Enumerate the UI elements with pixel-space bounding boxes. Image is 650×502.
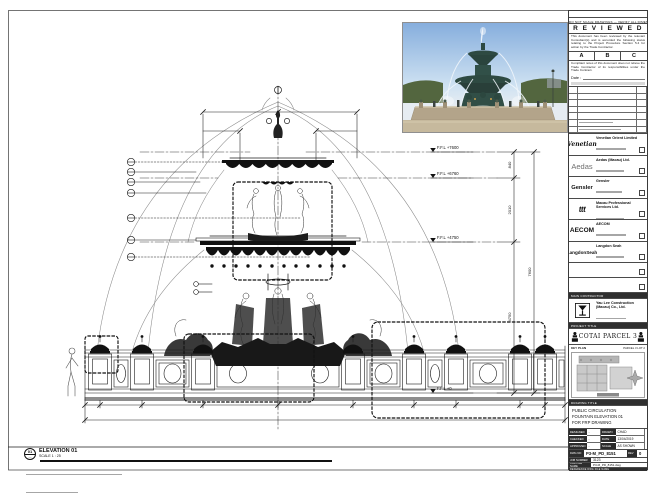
date-value: 13/04/2019 bbox=[616, 436, 645, 443]
cad-file-label: CAD FILE NAME bbox=[569, 463, 591, 467]
gensler-logo: Gensler bbox=[571, 185, 593, 191]
dotted-callout-boxes bbox=[85, 182, 545, 418]
consultant-org: Gensler bbox=[596, 179, 645, 183]
dwg-no-row: DWG NO P3-M_PD_8151 REV 0 bbox=[569, 450, 647, 458]
reviewed-title: R E V I E W E D bbox=[569, 24, 647, 34]
drawing-title-text: PUBLIC CIRCULATION FOUNTAIN ELEVATION 01… bbox=[569, 406, 647, 429]
drawing-title-line: FOR FRP DRAWING bbox=[572, 420, 644, 426]
consultant-row-langdonseah: LangdonSeah Langdon Seah bbox=[569, 242, 647, 263]
status-checkbox bbox=[639, 269, 645, 275]
detail-number: 01 bbox=[25, 449, 35, 455]
dwg-no-label: DWG NO bbox=[569, 450, 584, 457]
ornament-icon bbox=[571, 331, 579, 343]
level-label: F.F.L +6760 bbox=[437, 171, 459, 176]
status-checkbox bbox=[639, 284, 645, 290]
footer-filepath-smudge bbox=[26, 466, 122, 502]
rev-label: REV bbox=[627, 450, 637, 457]
status-checkbox bbox=[639, 254, 645, 260]
yaulee-logo bbox=[575, 303, 590, 318]
designed-value: - bbox=[587, 429, 601, 436]
job-number-value: 3123 bbox=[591, 458, 647, 462]
revision-table: ▲ ▲ bbox=[569, 87, 647, 134]
revision-row bbox=[569, 120, 647, 127]
revision-row bbox=[569, 87, 647, 94]
dim-label: 2010 bbox=[507, 205, 512, 215]
venetian-logo: Venetian bbox=[569, 141, 597, 148]
dim-label: 7600 bbox=[527, 267, 532, 277]
consultant-org: AECOM bbox=[596, 222, 645, 226]
dim-label: 840 bbox=[507, 161, 512, 168]
signature-strip bbox=[571, 82, 645, 86]
scale-value: AS SHOWN bbox=[616, 443, 645, 450]
level-label: F.F.L +7600 bbox=[437, 145, 459, 150]
detail-sheet: — bbox=[25, 455, 35, 459]
level-lines bbox=[140, 152, 497, 242]
revision-row bbox=[569, 100, 647, 107]
revision-row bbox=[569, 113, 647, 120]
elevation-title-label: 01 — ELEVATION 01 SCALE 1 : 25 bbox=[24, 448, 77, 460]
reviewed-paragraph-1: This document has been reviewed by the r… bbox=[569, 34, 647, 51]
reference-photo-image bbox=[402, 22, 568, 133]
status-abc-row: A B C bbox=[569, 51, 647, 61]
drawn-label: DRAWN bbox=[601, 429, 616, 436]
status-checkbox bbox=[639, 211, 645, 217]
date-label: Date : bbox=[571, 76, 581, 80]
level-label: F.F.L +4750 bbox=[437, 235, 459, 240]
status-c: C bbox=[621, 52, 647, 60]
key-plan-sublabel: PARCEL 3 LOT 2 bbox=[623, 346, 645, 350]
consultant-row-mps: ttt Macau Professional Services Ltd. bbox=[569, 199, 647, 220]
reference-photo bbox=[400, 20, 568, 133]
checked-label: CHECKED bbox=[569, 436, 587, 443]
level-markers: F.F.L +7600 F.F.L +6760 F.F.L +4750 F.F.… bbox=[430, 145, 473, 393]
elevation-scale: SCALE 1 : 25 bbox=[39, 454, 77, 458]
elevation-title-rule bbox=[40, 460, 332, 462]
mps-logo: ttt bbox=[579, 205, 586, 214]
date-field-label: DATE bbox=[601, 436, 616, 443]
reviewed-stamp: R E V I E W E D This document has been r… bbox=[569, 24, 647, 87]
empty-consultant-box bbox=[569, 278, 647, 293]
status-b: B bbox=[595, 52, 621, 60]
langdonseah-logo: LangdonSeah bbox=[569, 250, 597, 255]
consultant-row-gensler: Gensler Gensler bbox=[569, 177, 647, 199]
designed-label: DESIGNED bbox=[569, 429, 587, 436]
reviewed-paragraph-2: Compliant notes of this document does no… bbox=[569, 61, 647, 74]
dwg-no-value: P3-M_PD_8151 bbox=[584, 450, 627, 457]
rev-value: 0 bbox=[637, 450, 647, 457]
revision-row bbox=[569, 94, 647, 101]
consultant-row-aedas: Aedas Aedas (Macau) Ltd. bbox=[569, 156, 647, 177]
scale-label: SCALE bbox=[601, 443, 616, 450]
cad-file-value: P3-M_PD_8151.dwg bbox=[591, 463, 647, 467]
consultant-row-aecom: AECOM AECOM bbox=[569, 220, 647, 242]
status-checkbox bbox=[639, 168, 645, 174]
status-checkbox bbox=[639, 233, 645, 239]
date-line: Date : bbox=[569, 74, 647, 81]
contractor-block: Yau Lee Construction (Macau) Co., Ltd. bbox=[569, 299, 647, 323]
dim-label: 4750 bbox=[507, 312, 512, 322]
revision-row bbox=[569, 107, 647, 114]
title-block: DO NOT SCALE DRAWINGS — VERIFY ALL DIMEN… bbox=[568, 10, 648, 470]
job-number-label: JOB NUMBER bbox=[569, 458, 591, 462]
drawn-value: CHAD bbox=[616, 429, 645, 436]
contractor-org: Yau Lee Construction (Macau) Co., Ltd. bbox=[596, 301, 645, 310]
revision-row bbox=[569, 127, 647, 134]
consultant-org: Venetian Orient Limited bbox=[596, 136, 645, 140]
project-title-banner: COTAI PARCEL 3 bbox=[569, 329, 647, 345]
ornament-icon bbox=[637, 331, 645, 343]
key-plan-label: KEY PLAN bbox=[571, 346, 586, 350]
status-a: A bbox=[569, 52, 595, 60]
aedas-logo: Aedas bbox=[571, 162, 592, 171]
bottom-dimension-chain bbox=[83, 400, 568, 423]
fields-grid: DESIGNED - DRAWN CHAD CHECKED - DATE 13/… bbox=[569, 429, 647, 450]
key-plan-map bbox=[571, 352, 645, 398]
checked-value: - bbox=[587, 436, 601, 443]
consultant-row-venetian: Venetian Venetian Orient Limited bbox=[569, 134, 647, 156]
consultant-org: Macau Professional Services Ltd. bbox=[596, 201, 645, 210]
approved-value: - bbox=[587, 443, 601, 450]
sheet-note-bar: DO NOT SCALE DRAWINGS — VERIFY ALL DIMEN… bbox=[569, 17, 647, 24]
status-checkbox bbox=[639, 190, 645, 196]
human-scale-figure bbox=[66, 348, 78, 396]
aecom-logo: AECOM bbox=[570, 227, 594, 234]
empty-consultant-box bbox=[569, 263, 647, 278]
detail-bubble: 01 — bbox=[24, 448, 36, 460]
consultant-org: Langdon Seah bbox=[596, 244, 645, 248]
key-plan: KEY PLAN PARCEL 3 LOT 2 bbox=[569, 345, 647, 400]
detail-callouts bbox=[127, 158, 310, 294]
approved-label: APPROVED bbox=[569, 443, 587, 450]
project-name: COTAI PARCEL 3 bbox=[579, 333, 637, 340]
reference-dwg-row: REFERENCE DWG FILE NAME bbox=[569, 468, 647, 471]
status-checkbox bbox=[639, 147, 645, 153]
consultant-org: Aedas (Macau) Ltd. bbox=[596, 158, 645, 162]
